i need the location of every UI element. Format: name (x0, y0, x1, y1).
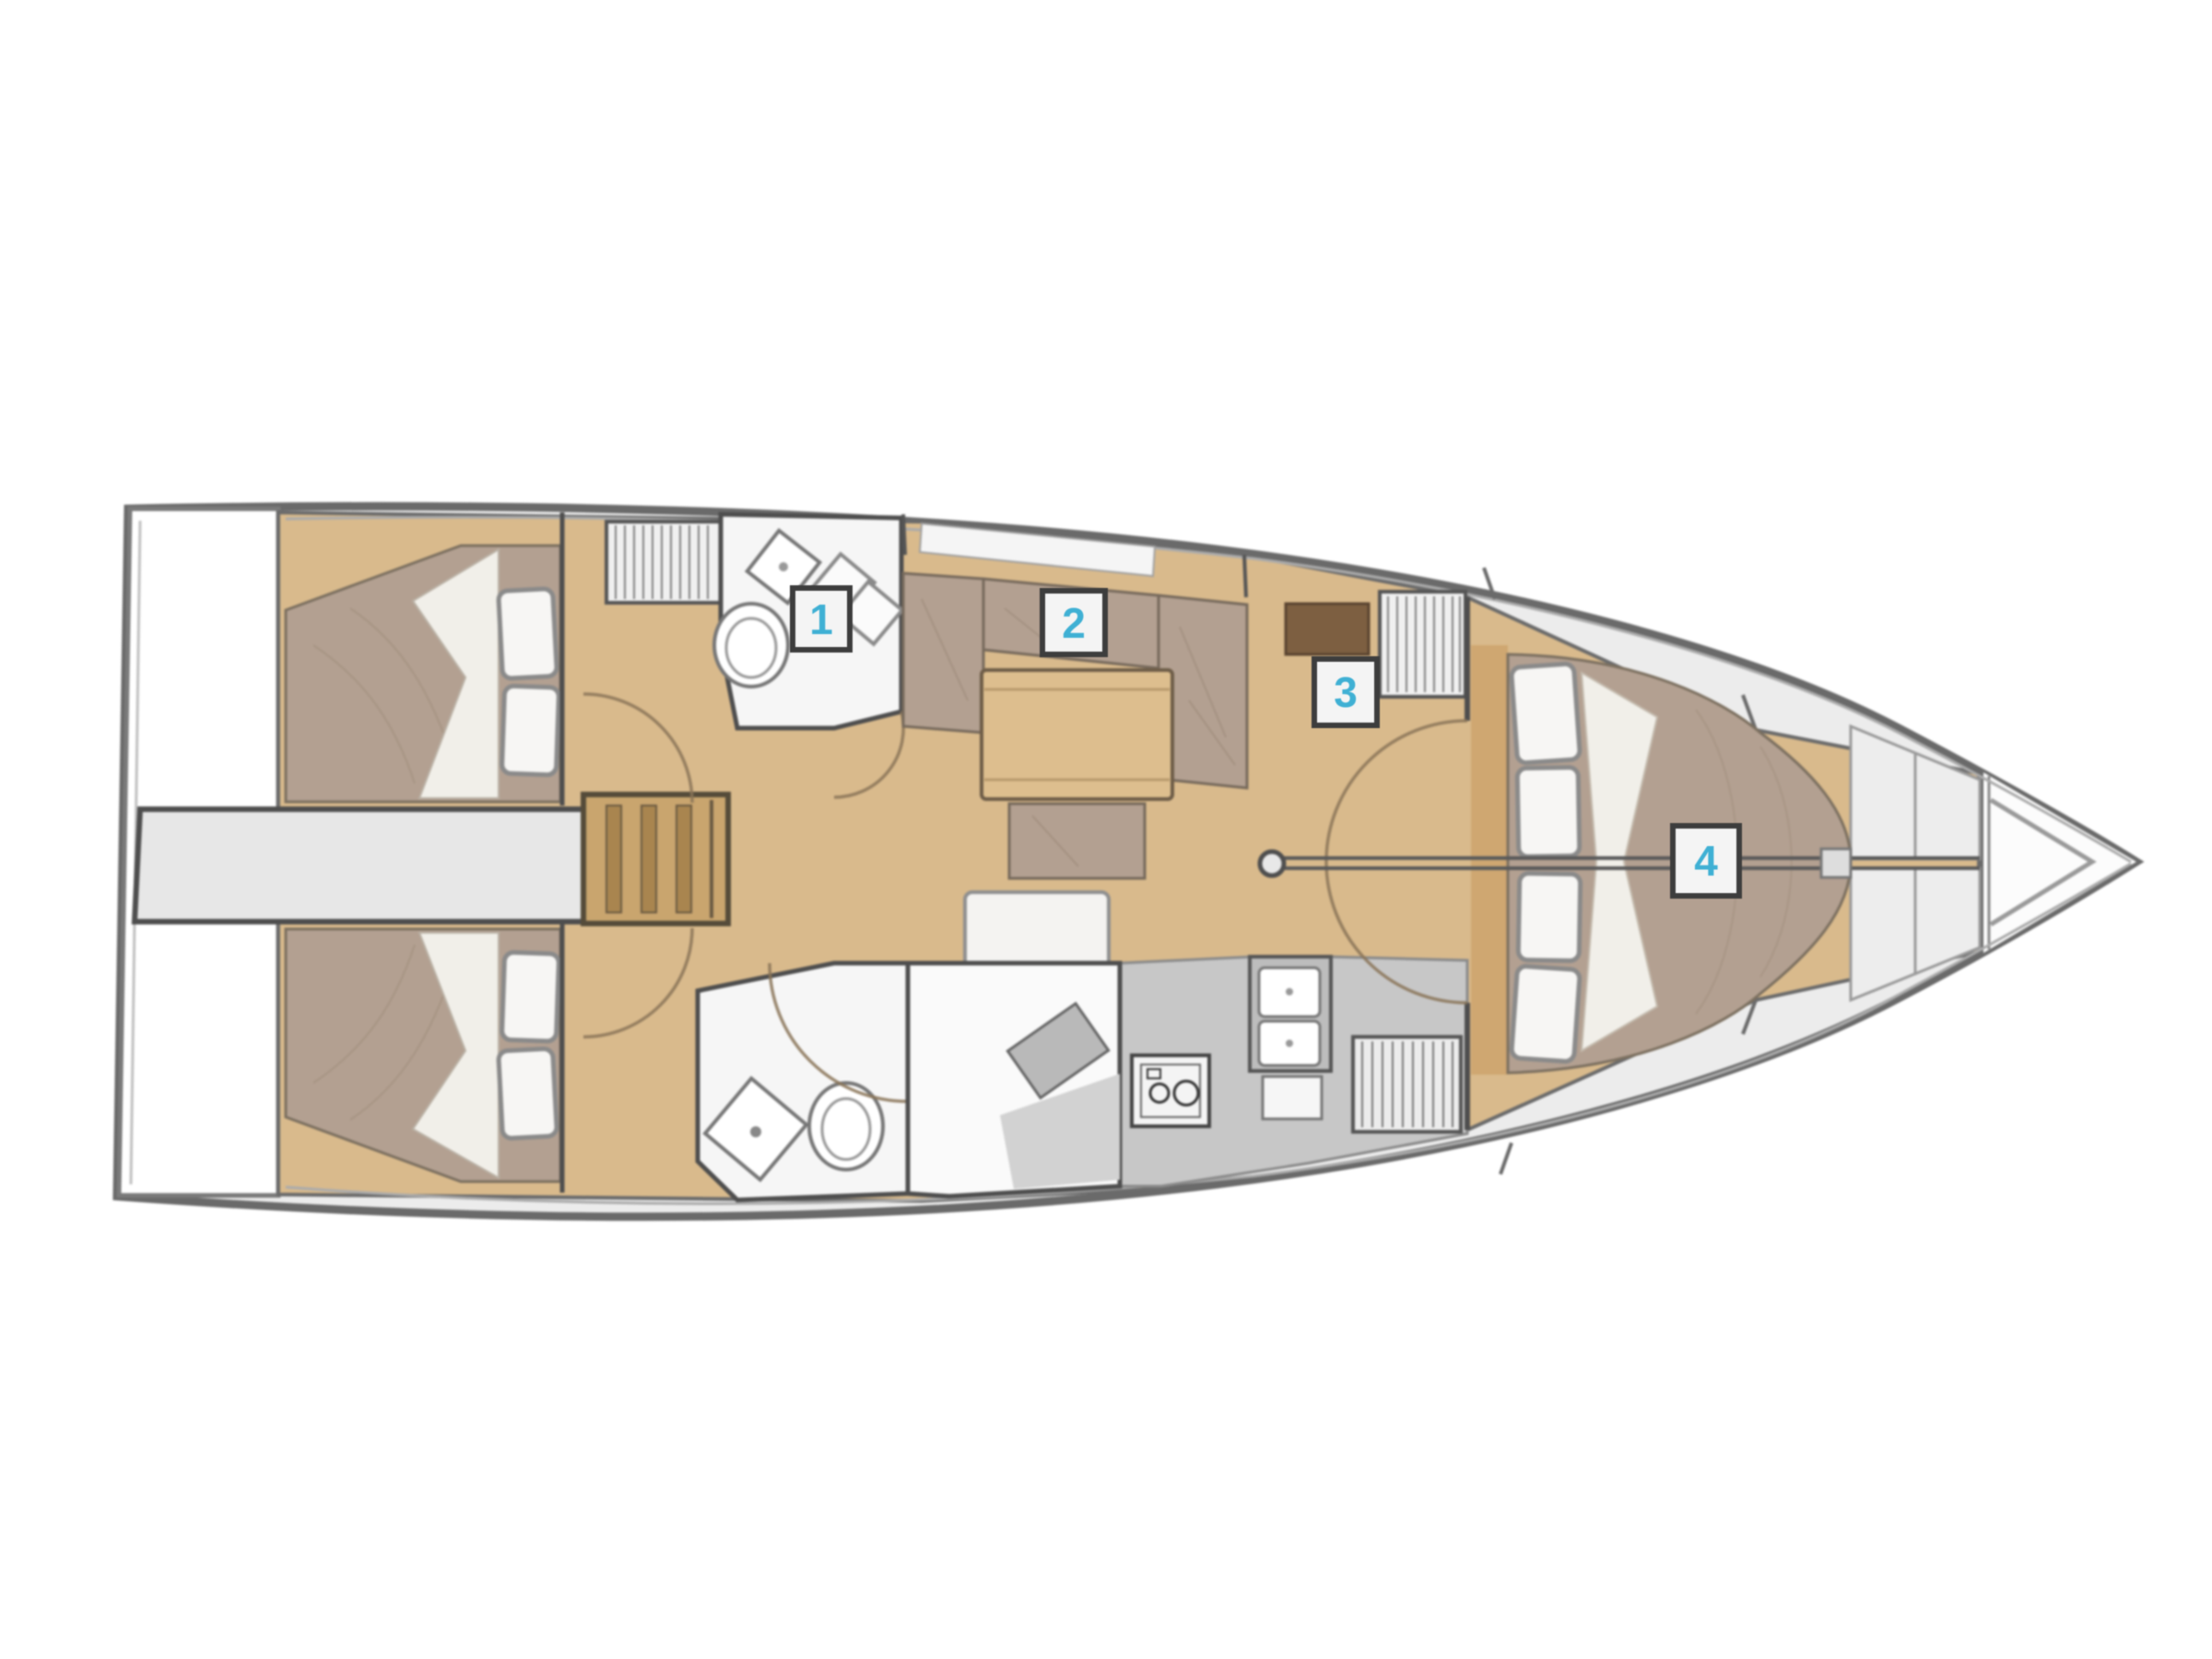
step-tread-2 (641, 806, 656, 912)
settee-left-chaise (903, 573, 983, 733)
sink-drain-1 (1286, 988, 1293, 995)
companionway (135, 794, 728, 924)
mast-foot (1260, 852, 1284, 876)
aft-port-pillow-1 (499, 588, 558, 678)
step-tread-1 (606, 806, 621, 912)
hotspot-marker-4[interactable]: 4 (1670, 823, 1742, 899)
wardrobe-louvered-cabinet (606, 522, 721, 603)
shower (908, 963, 1120, 1196)
chart-table (1286, 604, 1369, 654)
sink-drain (779, 562, 788, 571)
saloon-wall-tick-2 (1244, 555, 1246, 597)
vberth-pillow-1 (1511, 664, 1580, 763)
floorplan-canvas: 1234 (0, 0, 2212, 1659)
step-tread-3 (677, 806, 691, 912)
hotspot-marker-3[interactable]: 3 (1312, 656, 1380, 728)
forepeak-floor (1983, 772, 2136, 953)
boat-floorplan (0, 0, 2212, 1659)
deck-tick-bottom-1 (1500, 1143, 1512, 1174)
aft-port-pillow-2 (501, 686, 559, 775)
saloon-bench (1009, 804, 1145, 878)
galley-locker-door (1263, 1077, 1322, 1119)
hotspot-marker-2[interactable]: 2 (1040, 588, 1108, 657)
engine-corridor (135, 809, 583, 922)
aft-stbd-pillow-1 (501, 952, 559, 1041)
saloon-wall-tick-1 (903, 514, 905, 555)
fridge-louvered (1353, 1037, 1461, 1132)
aft-stbd-pillow-2 (499, 1048, 558, 1138)
vberth-pillow-4 (1512, 966, 1581, 1062)
hotspot-marker-1[interactable]: 1 (790, 585, 853, 653)
sink-drain-2 (1286, 1040, 1293, 1047)
day-head-sink-drain (750, 1126, 761, 1137)
rod-collar (1821, 849, 1851, 877)
vberth-pillow-3 (1518, 873, 1581, 960)
day-head-floor (698, 963, 908, 1200)
vberth-pillow-2 (1517, 767, 1580, 856)
day-head (698, 963, 908, 1200)
